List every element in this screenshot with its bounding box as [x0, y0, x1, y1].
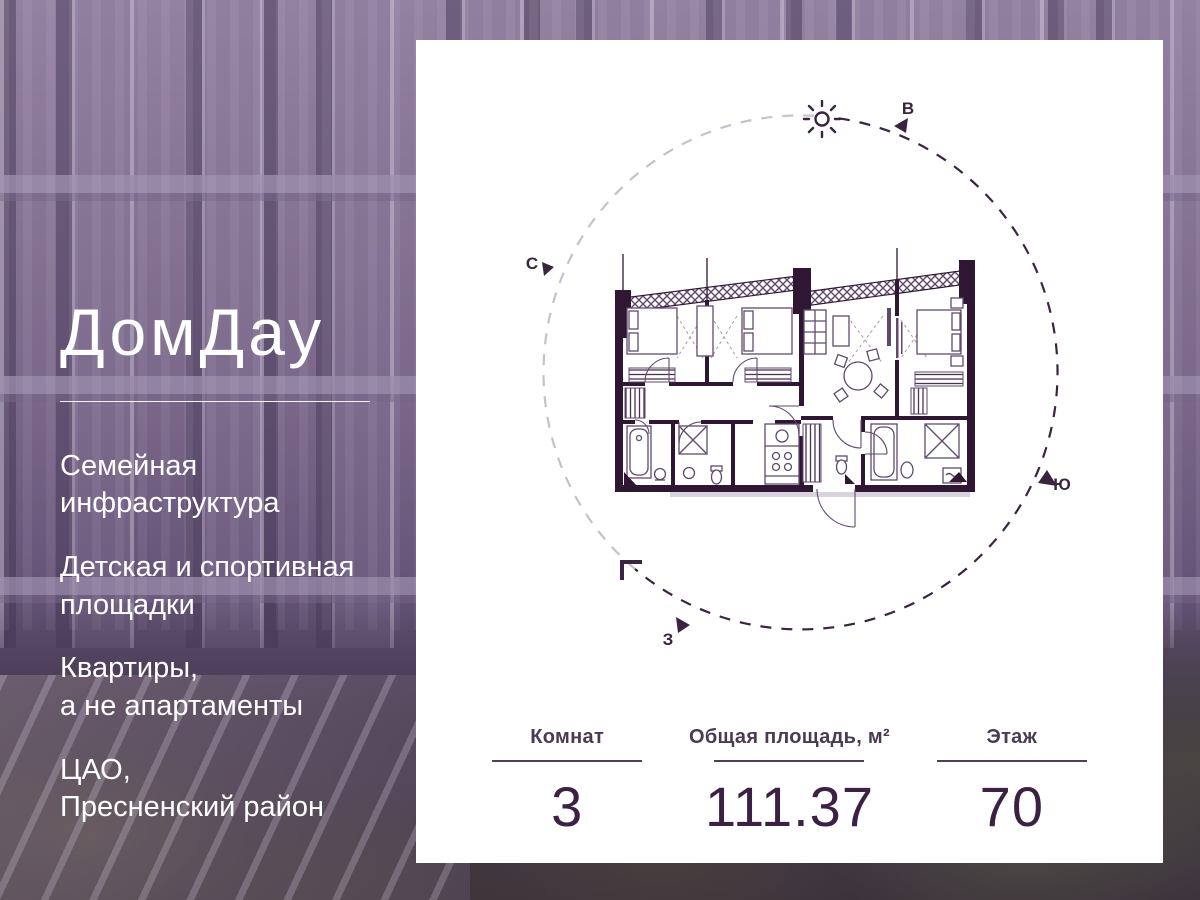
stats-row: Комнат 3 Общая площадь, м² 111.37 Этаж 7…	[456, 726, 1123, 839]
stat-area-value: 111.37	[678, 774, 900, 839]
sun-icon	[804, 101, 840, 137]
sliding-door-track	[901, 322, 903, 354]
floor-plan	[615, 248, 975, 527]
feature-district: ЦАО, Пресненский район	[60, 752, 390, 827]
master-wardrobe	[915, 372, 963, 386]
kitchen-counter	[765, 424, 799, 484]
feature-playgrounds: Детская и спортивная площадки	[60, 549, 390, 624]
stat-rooms-label: Комнат	[456, 726, 678, 749]
stat-area-underline	[714, 760, 864, 762]
compass-east-label: В	[902, 99, 914, 118]
corridor-closet	[625, 388, 645, 418]
bedroom2-wardrobe	[745, 368, 791, 382]
living-room-shelving	[804, 310, 826, 354]
stat-floor: Этаж 70	[901, 726, 1123, 839]
compass: С В Ю З	[526, 99, 1071, 649]
balcony-slab	[670, 492, 970, 497]
bathroom2-fixtures	[679, 426, 722, 484]
bedroom2-bed	[742, 308, 792, 354]
bedroom1-bed	[627, 308, 677, 354]
bathroom1-fixtures	[624, 426, 666, 486]
floor-plan-and-compass: С В Ю З	[416, 40, 1163, 740]
corner-mark	[622, 562, 642, 580]
compass-west-label: З	[663, 630, 674, 649]
furniture	[624, 298, 967, 486]
stat-floor-value: 70	[901, 774, 1123, 839]
stat-rooms-underline	[492, 760, 642, 762]
stat-area-label: Общая площадь, м²	[678, 726, 900, 749]
stat-rooms-value: 3	[456, 774, 678, 839]
listing-card: С В Ю З	[416, 40, 1163, 863]
master-closet	[911, 388, 927, 414]
stat-floor-label: Этаж	[901, 726, 1123, 749]
living-cabinet	[833, 316, 849, 346]
bedroom1-wardrobe	[629, 368, 675, 382]
dining-set	[834, 349, 888, 402]
stat-floor-underline	[937, 760, 1087, 762]
compass-east-arrow-icon	[894, 118, 908, 133]
media-unit	[697, 306, 713, 356]
divider-line	[60, 401, 370, 402]
entry-hall-fixtures	[803, 424, 855, 484]
brand-logo: ДомДау	[60, 296, 390, 369]
feature-family-infrastructure: Семейная инфраструктура	[60, 448, 390, 523]
compass-north-label: С	[526, 254, 538, 273]
tv-panel	[887, 308, 891, 346]
stat-rooms: Комнат 3	[456, 726, 678, 839]
compass-west-arrow-icon	[676, 617, 690, 633]
stat-area: Общая площадь, м² 111.37	[678, 726, 900, 839]
master-bed	[917, 298, 963, 366]
left-panel: ДомДау Семейная инфраструктура Детская и…	[60, 0, 390, 853]
sliding-door	[896, 318, 899, 358]
feature-list: Семейная инфраструктура Детская и спорти…	[60, 448, 390, 828]
compass-north-arrow-icon	[542, 262, 554, 276]
feature-apartments: Квартиры, а не апартаменты	[60, 650, 390, 725]
